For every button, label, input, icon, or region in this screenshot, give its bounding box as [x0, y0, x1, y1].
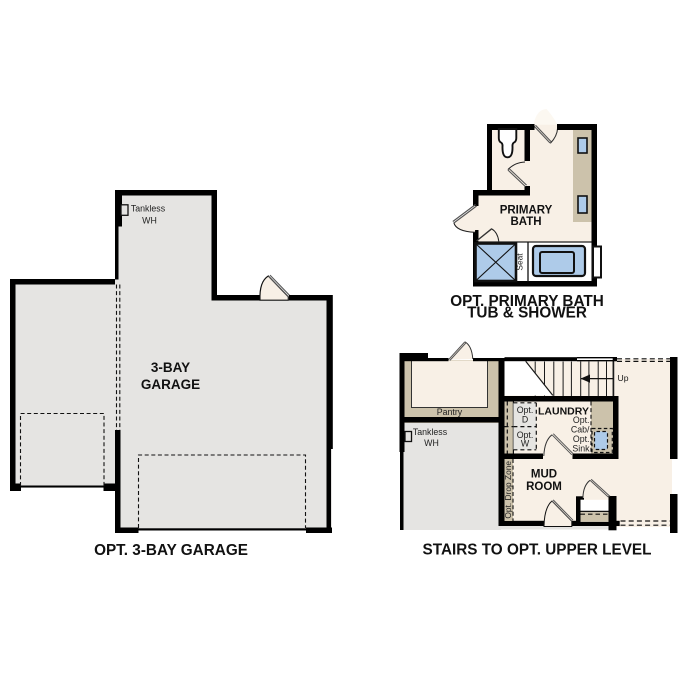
svg-text:3-BAY: 3-BAY	[151, 360, 190, 375]
svg-text:TUB & SHOWER: TUB & SHOWER	[467, 305, 587, 322]
svg-text:Pantry: Pantry	[437, 407, 463, 417]
svg-text:Up: Up	[618, 373, 629, 383]
svg-text:Opt.: Opt.	[573, 434, 590, 444]
svg-text:WH: WH	[142, 216, 157, 226]
svg-text:WH: WH	[424, 438, 439, 448]
svg-text:Opt. Drop Zone: Opt. Drop Zone	[503, 461, 513, 519]
svg-text:Opt.: Opt.	[573, 415, 590, 425]
svg-text:MUD: MUD	[531, 469, 557, 481]
svg-text:Cab/: Cab/	[571, 425, 590, 435]
svg-text:STAIRS TO OPT. UPPER LEVEL: STAIRS TO OPT. UPPER LEVEL	[423, 542, 652, 559]
svg-text:PRIMARY: PRIMARY	[500, 205, 553, 217]
svg-text:D: D	[522, 415, 528, 425]
svg-text:W: W	[521, 439, 530, 449]
svg-text:Tankless: Tankless	[131, 204, 166, 214]
svg-text:Sink: Sink	[572, 444, 590, 454]
svg-text:OPT. 3-BAY GARAGE: OPT. 3-BAY GARAGE	[94, 542, 248, 559]
svg-text:Tankless: Tankless	[413, 427, 448, 437]
svg-text:Seat: Seat	[515, 253, 525, 271]
svg-text:ROOM: ROOM	[526, 481, 562, 493]
svg-text:GARAGE: GARAGE	[141, 377, 200, 392]
svg-text:BATH: BATH	[510, 216, 541, 228]
